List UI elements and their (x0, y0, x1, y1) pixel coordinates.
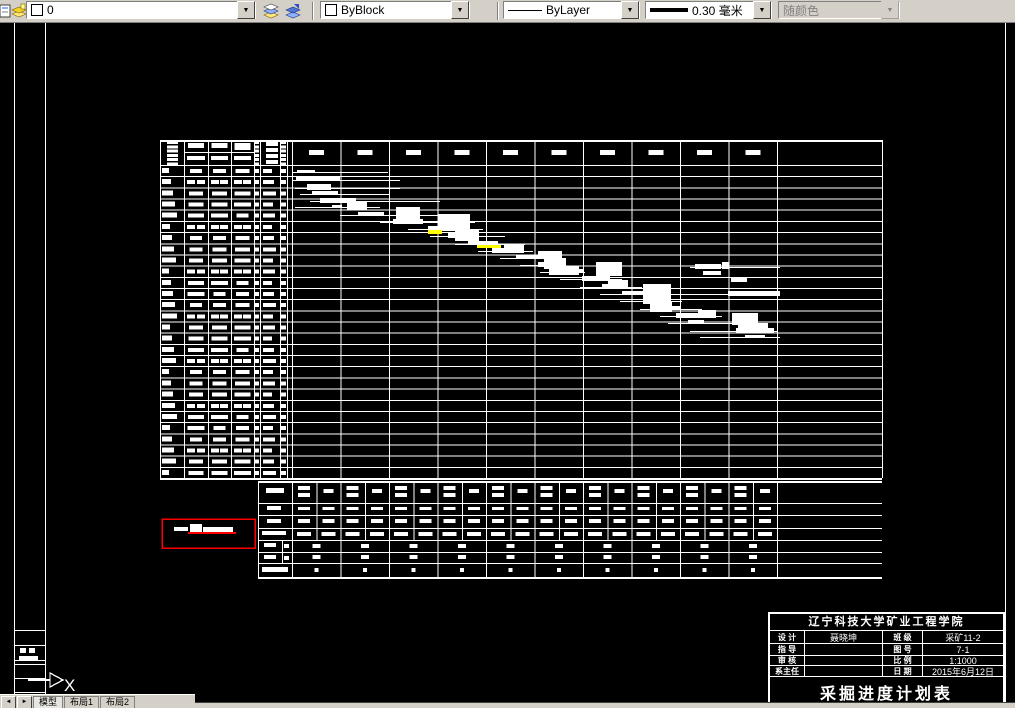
title-block: 辽宁科技大学矿业工程学院 设 计 聂晓坤 班 级 采矿11-2 指 导 图 号 … (768, 612, 1005, 708)
linetype-control-select[interactable]: ByLayer ▼ (503, 1, 640, 19)
layer-previous-button[interactable] (283, 1, 303, 21)
layer-previous-icon (285, 3, 301, 19)
color-control-select[interactable]: ByBlock ▼ (320, 1, 470, 19)
field-value-dept-head (805, 666, 883, 677)
tab-model[interactable]: 模型 (33, 696, 63, 708)
linetype-value: ByLayer (546, 3, 590, 17)
layout-tab-bar: ◄ ► 模型 布局1 布局2 (0, 694, 195, 708)
title-block-row: 指 导 图 号 7-1 (770, 644, 1003, 656)
tab-layout2[interactable]: 布局2 (100, 696, 135, 708)
chevron-down-icon[interactable]: ▼ (753, 1, 771, 19)
ucs-x-label: X (64, 676, 75, 695)
field-value-designer: 聂晓坤 (805, 631, 883, 644)
chevron-down-icon[interactable]: ▼ (451, 1, 469, 19)
lineweight-control-select[interactable]: 0.30 毫米 ▼ (645, 1, 772, 19)
field-value-drawing-no: 7-1 (923, 644, 1003, 656)
layer-states-button[interactable] (261, 1, 281, 21)
chevron-down-icon: ▼ (881, 1, 899, 19)
field-value-review (805, 656, 883, 666)
field-label-dept-head: 系主任 (770, 666, 805, 677)
chevron-down-icon[interactable]: ▼ (237, 1, 255, 19)
field-label-scale: 比 例 (883, 656, 923, 666)
toolbar-separator (497, 2, 499, 20)
layer-select[interactable]: 0 ▼ (26, 1, 256, 19)
toolbar-separator (312, 2, 314, 20)
field-label-drawing-no: 图 号 (883, 644, 923, 656)
field-label-design: 设 计 (770, 631, 805, 644)
field-value-advisor (805, 644, 883, 656)
tab-nav-prev-button[interactable]: ◄ (1, 696, 16, 708)
linetype-sample (508, 10, 542, 11)
tab-layout1[interactable]: 布局1 (64, 696, 99, 708)
color-value: ByBlock (341, 3, 384, 17)
title-block-row: 系主任 日 期 2015年6月12日 (770, 666, 1003, 677)
plot-style-select: 随颜色 ▼ (778, 1, 900, 19)
lineweight-sample (650, 8, 688, 12)
model-canvas[interactable]: X (0, 0, 1015, 708)
object-properties-toolbar: 0 ▼ ByBlock ▼ ByLayer ▼ (0, 0, 1015, 23)
layer-current-icon (11, 3, 27, 19)
title-block-row: 审 核 比 例 1:1000 (770, 656, 1003, 666)
title-block-row: 设 计 聂晓坤 班 级 采矿11-2 (770, 631, 1003, 644)
field-value-class: 采矿11-2 (923, 631, 1003, 644)
field-label-review: 审 核 (770, 656, 805, 666)
field-value-scale: 1:1000 (923, 656, 1003, 666)
chevron-down-icon[interactable]: ▼ (621, 1, 639, 19)
plot-style-value: 随颜色 (783, 2, 819, 19)
field-value-date: 2015年6月12日 (923, 666, 1003, 677)
ucs-arrow-icon (50, 673, 63, 687)
layer-states-icon (263, 3, 279, 19)
layer-color-swatch (31, 4, 43, 16)
field-label-advisor: 指 导 (770, 644, 805, 656)
school-name: 辽宁科技大学矿业工程学院 (770, 614, 1003, 631)
field-label-date: 日 期 (883, 666, 923, 677)
field-label-class: 班 级 (883, 631, 923, 644)
layer-name: 0 (47, 3, 54, 17)
tab-nav-next-button[interactable]: ► (17, 696, 32, 708)
color-swatch (325, 4, 337, 16)
autocad-window: X 辽宁科技大学矿业工程学院 设 计 聂晓坤 班 级 采矿11-2 指 导 图 … (0, 0, 1015, 708)
lineweight-value: 0.30 毫米 (692, 2, 743, 19)
